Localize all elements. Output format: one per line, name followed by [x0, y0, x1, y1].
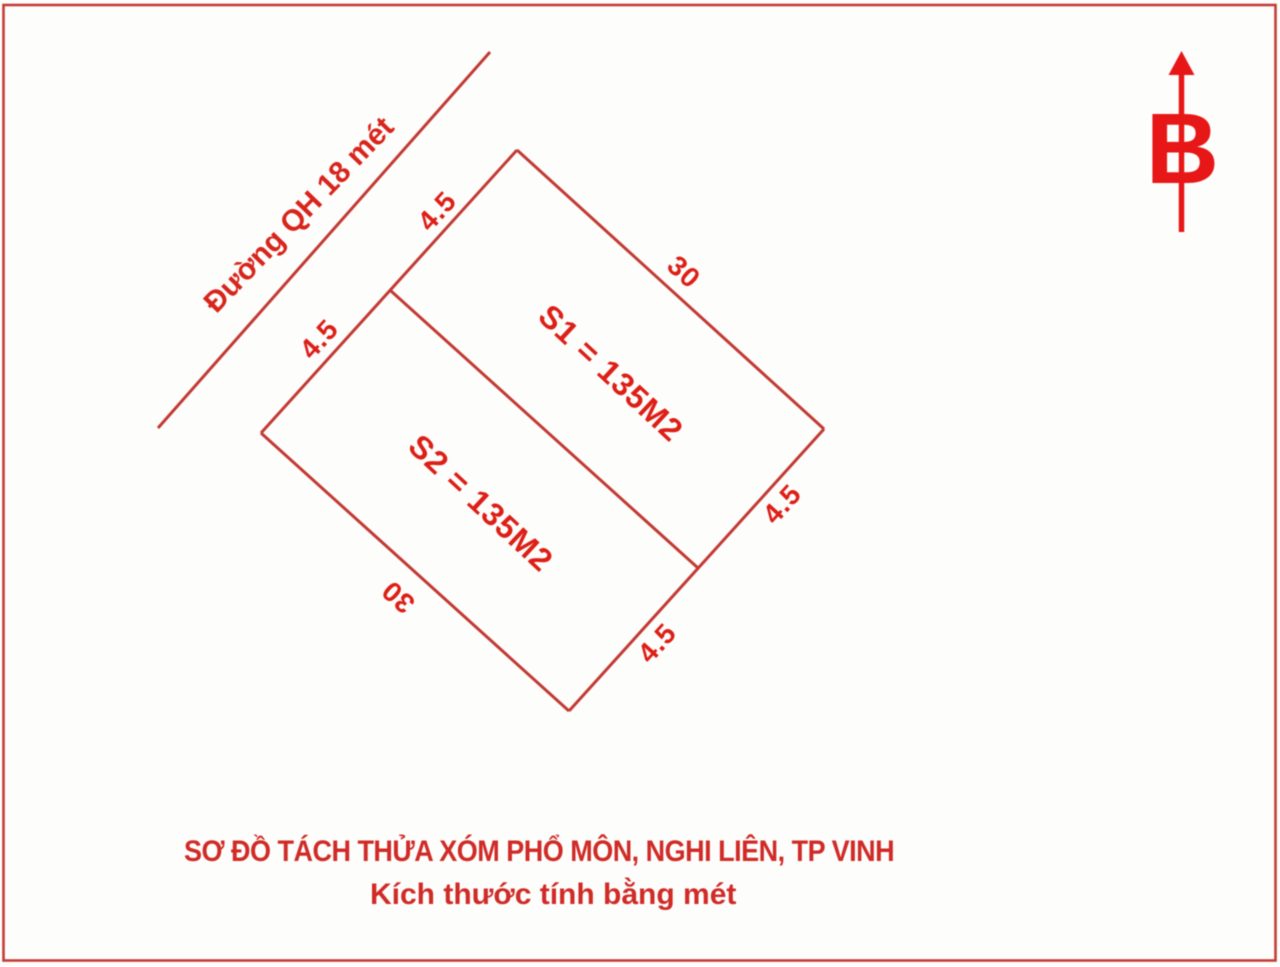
svg-text:Kích thước tính bằng mét: Kích thước tính bằng mét: [370, 877, 736, 911]
svg-text:SƠ ĐỒ TÁCH THỬA XÓM PHỔ MÔN, N: SƠ ĐỒ TÁCH THỬA XÓM PHỔ MÔN, NGHI LIÊN, …: [184, 834, 894, 869]
svg-text:B: B: [1146, 92, 1219, 204]
